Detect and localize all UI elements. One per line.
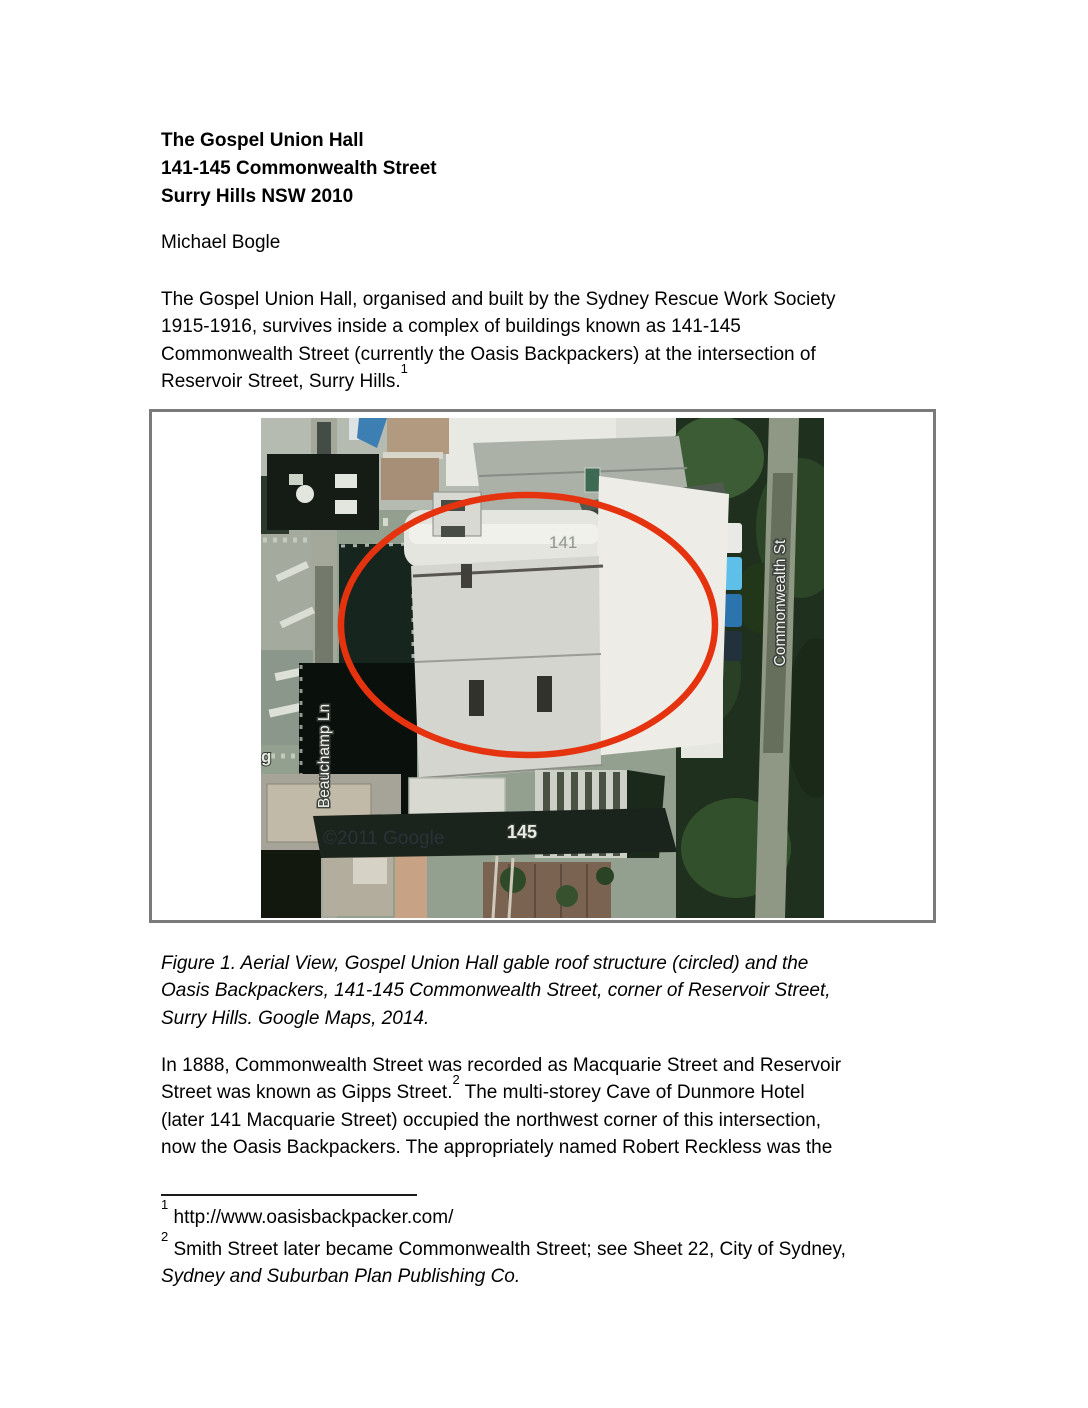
commonwealth-street-label: Commonwealth St — [772, 539, 789, 666]
figure-caption: Figure 1. Aerial View, Gospel Union Hall… — [161, 950, 831, 1032]
paragraph-line: Commonwealth Street (currently the Oasis… — [161, 341, 836, 368]
intro-paragraph: The Gospel Union Hall, organised and bui… — [161, 286, 836, 396]
figure-box: 141 145 ©2011 Google g Beauchamp Ln Comm… — [149, 409, 936, 923]
footnote-1-number: 1 — [161, 1197, 168, 1212]
partial-street-label: g — [261, 747, 271, 766]
building-number-141-label: 141 — [549, 533, 577, 552]
paragraph-text: Street was known as Gipps Street. — [161, 1082, 452, 1103]
copyright-watermark: ©2011 Google — [323, 828, 444, 849]
tan-roofs — [381, 418, 449, 500]
title-line-2: 141-145 Commonwealth Street — [161, 155, 437, 183]
aerial-map-image: 141 145 ©2011 Google g Beauchamp Ln Comm… — [261, 418, 824, 918]
beauchamp-lane-label: Beauchamp Ln — [316, 704, 333, 808]
footnote-2: 2 Smith Street later became Commonwealth… — [161, 1236, 951, 1291]
document-title: The Gospel Union Hall 141-145 Commonweal… — [161, 127, 437, 211]
paragraph-line: (later 141 Macquarie Street) occupied th… — [161, 1107, 841, 1134]
footnote-reference-1: 1 — [401, 361, 408, 376]
body-paragraph: In 1888, Commonwealth Street was recorde… — [161, 1052, 841, 1162]
paragraph-line: In 1888, Commonwealth Street was recorde… — [161, 1052, 841, 1079]
title-line-3: Surry Hills NSW 2010 — [161, 183, 437, 211]
author-name: Michael Bogle — [161, 229, 280, 256]
caption-line: Figure 1. Aerial View, Gospel Union Hall… — [161, 950, 831, 977]
title-line-1: The Gospel Union Hall — [161, 127, 437, 155]
footnote-2-text: Smith Street later became Commonwealth S… — [168, 1239, 846, 1260]
paragraph-line: Street was known as Gipps Street.2 The m… — [161, 1079, 841, 1106]
brick-roof-bottom — [483, 856, 614, 918]
footnote-2-line-1: 2 Smith Street later became Commonwealth… — [161, 1236, 951, 1263]
footnote-separator — [161, 1194, 417, 1196]
document-page: The Gospel Union Hall 141-145 Commonweal… — [0, 0, 1088, 1408]
footnote-2-line-2: Sydney and Suburban Plan Publishing Co. — [161, 1263, 951, 1290]
paragraph-line: Reservoir Street, Surry Hills.1 — [161, 368, 836, 395]
paragraph-line: now the Oasis Backpackers. The appropria… — [161, 1134, 841, 1161]
building-number-145-label: 145 — [507, 822, 537, 842]
footnote-1: 1 http://www.oasisbackpacker.com/ — [161, 1204, 453, 1231]
paragraph-text: The multi-storey Cave of Dunmore Hotel — [460, 1082, 805, 1103]
dark-building-topleft — [261, 454, 379, 534]
paragraph-line: The Gospel Union Hall, organised and bui… — [161, 286, 836, 313]
paragraph-line: 1915-1916, survives inside a complex of … — [161, 313, 836, 340]
caption-line: Surry Hills. Google Maps, 2014. — [161, 1005, 831, 1032]
footnote-reference-2: 2 — [452, 1072, 459, 1087]
paragraph-text: Reservoir Street, Surry Hills. — [161, 371, 401, 392]
footnote-2-number: 2 — [161, 1229, 168, 1244]
footnote-1-text: http://www.oasisbackpacker.com/ — [168, 1207, 453, 1228]
caption-line: Oasis Backpackers, 141-145 Commonwealth … — [161, 977, 831, 1004]
